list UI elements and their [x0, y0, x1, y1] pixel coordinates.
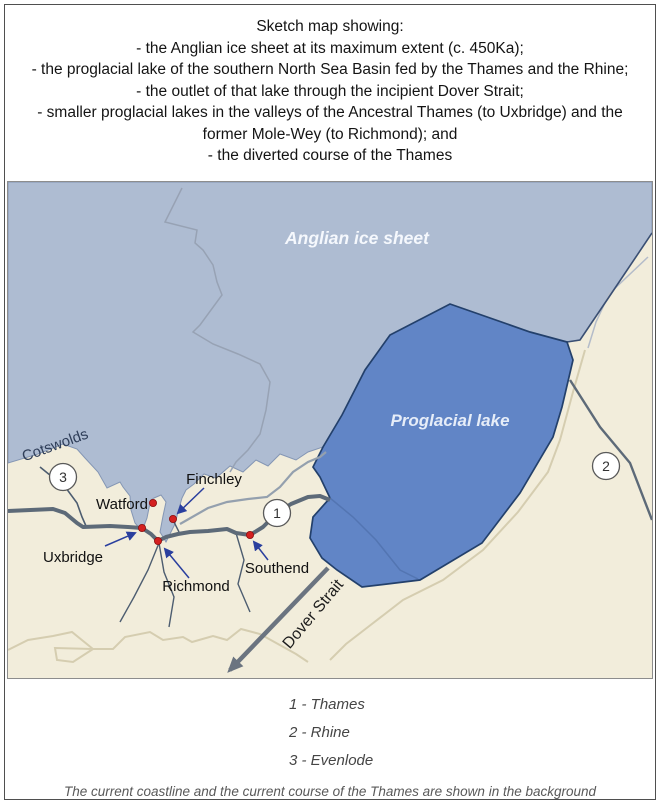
richmond-label: Richmond [162, 578, 230, 595]
proglacial-lake-label: Proglacial lake [390, 411, 509, 430]
title-heading: Sketch map showing: [27, 16, 633, 38]
thames-number-label: 1 [273, 505, 281, 521]
southend-marker-dot [246, 531, 253, 538]
legend-items: 1 - Thames 2 - Rhine 3 - Evenlode [289, 691, 655, 775]
finchley-label: Finchley [186, 471, 242, 488]
watford-label: Watford [96, 496, 148, 513]
uxbridge-label: Uxbridge [43, 549, 103, 566]
legend-item-rhine: 2 - Rhine [289, 719, 655, 747]
figure-border: Sketch map showing: - the Anglian ice sh… [4, 4, 656, 800]
rhine-number-label: 2 [602, 458, 610, 474]
title-bullet-outlet: - the outlet of that lake through the in… [27, 81, 633, 103]
title-bullet-ice-sheet: - the Anglian ice sheet at its maximum e… [27, 38, 633, 60]
figure-frame: Sketch map showing: - the Anglian ice sh… [0, 0, 660, 804]
title-bullet-smaller-lakes: - smaller proglacial lakes in the valley… [27, 102, 633, 145]
legend-note: The current coastline and the current co… [5, 784, 655, 799]
title-panel: Sketch map showing: - the Anglian ice sh… [5, 5, 655, 181]
evenlode-number-label: 3 [59, 469, 67, 485]
thames-number-marker: 1 [264, 499, 291, 526]
legend-item-evenlode: 3 - Evenlode [289, 747, 655, 775]
sketch-map: Anglian ice sheet Proglacial lake Cotswo… [8, 182, 652, 680]
watford-marker-dot [149, 499, 156, 506]
ice-sheet-label: Anglian ice sheet [284, 228, 430, 248]
title-bullet-diverted-course: - the diverted course of the Thames [27, 145, 633, 167]
finchley-marker-dot [169, 515, 176, 522]
richmond-marker-dot [154, 537, 161, 544]
uxbridge-marker-dot [138, 524, 145, 531]
southend-label: Southend [245, 560, 309, 577]
rhine-number-marker: 2 [593, 452, 620, 479]
title-bullet-proglacial-lake: - the proglacial lake of the southern No… [27, 59, 633, 81]
legend-panel: 1 - Thames 2 - Rhine 3 - Evenlode The cu… [5, 679, 655, 799]
map-panel: Anglian ice sheet Proglacial lake Cotswo… [7, 181, 653, 680]
legend-item-thames: 1 - Thames [289, 691, 655, 719]
evenlode-number-marker: 3 [50, 463, 77, 490]
